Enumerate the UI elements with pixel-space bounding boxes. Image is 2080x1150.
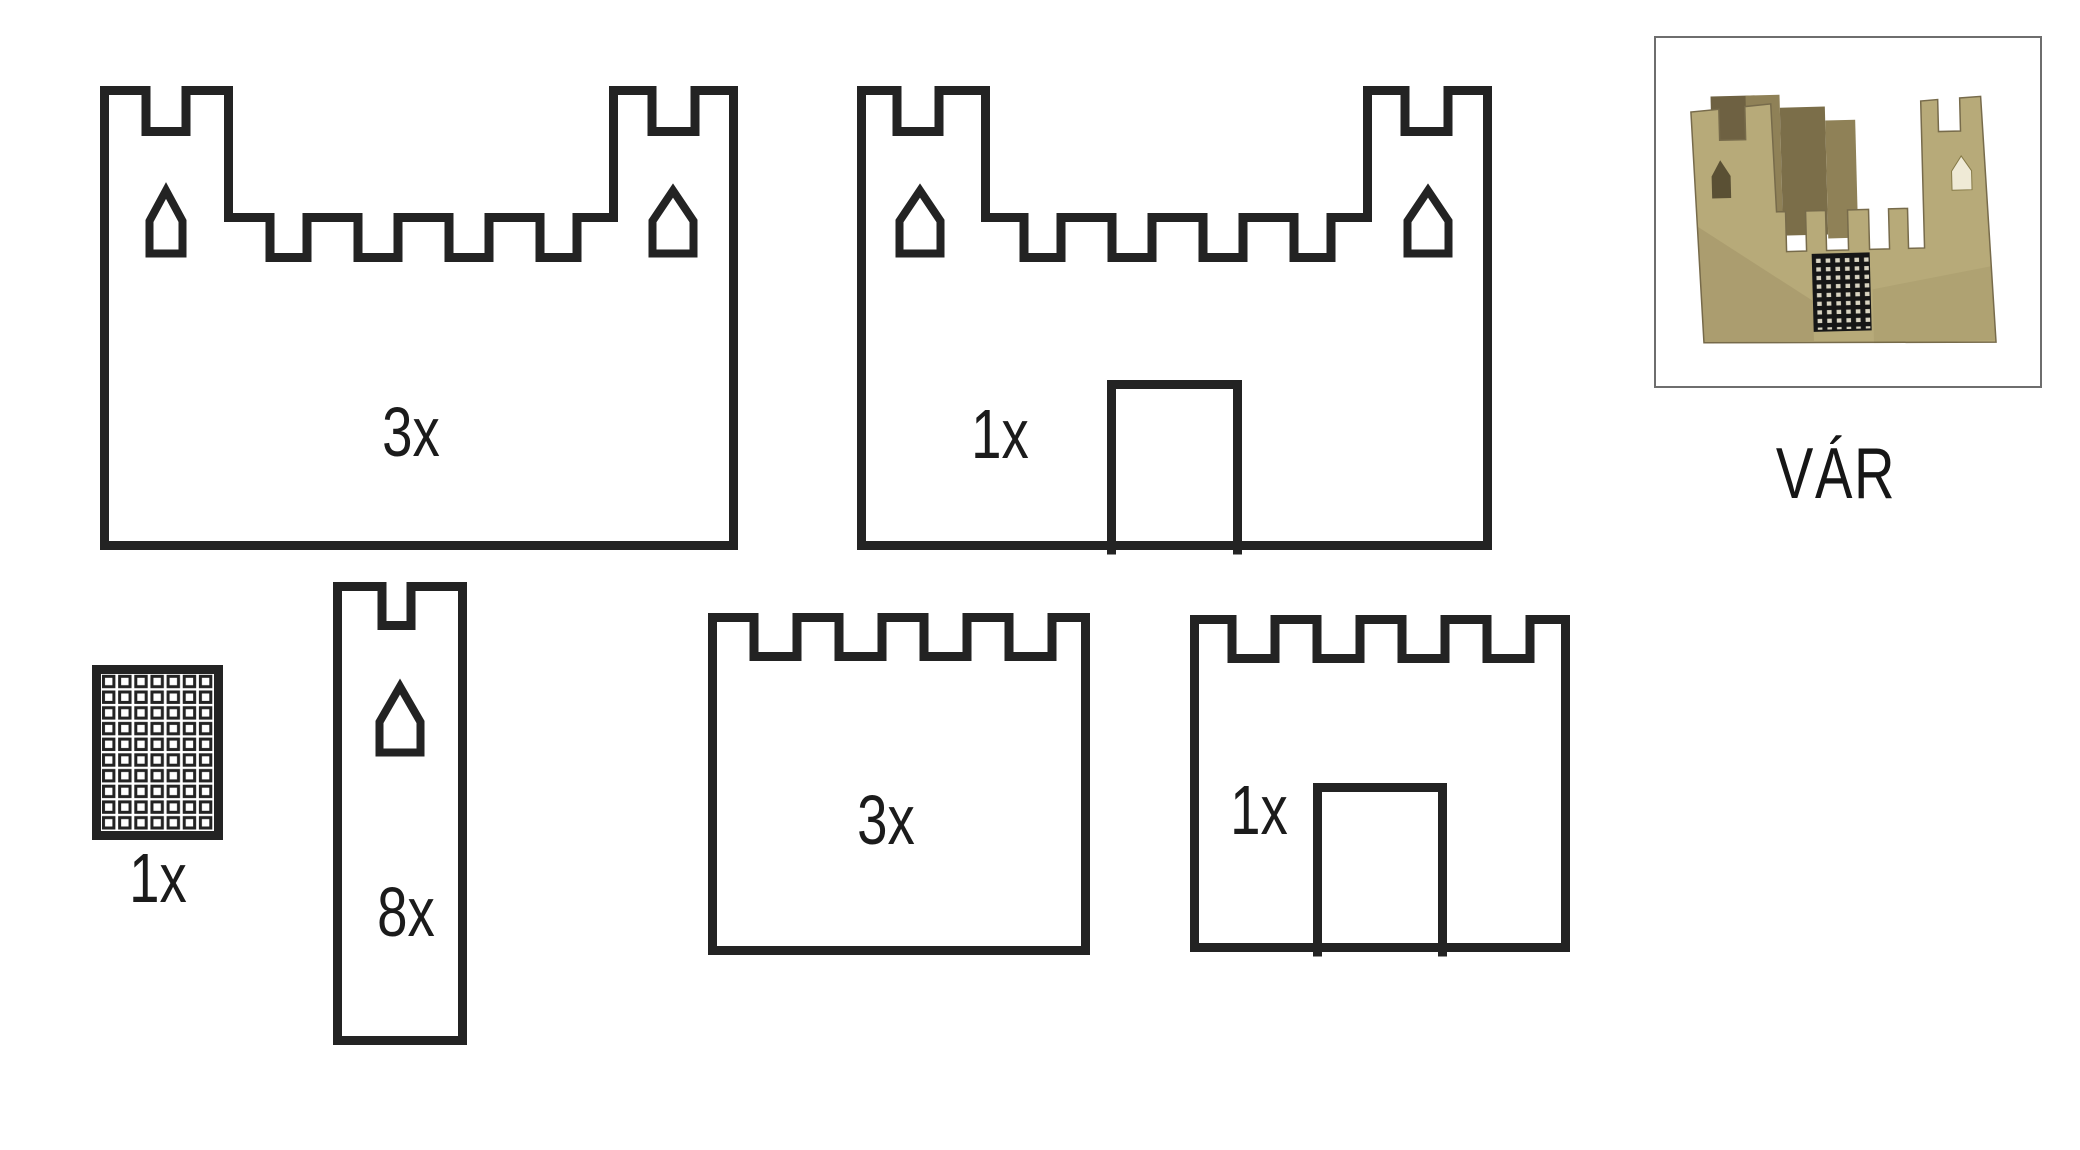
qty-label-portcullis: 1x [129,843,187,913]
piece-outer-wall-with-towers [105,91,734,546]
cardboard-castle-piece [1691,89,1997,350]
piece-outline [105,91,734,546]
piece-outer-wall-with-towers-and-gate [862,91,1488,551]
assembled-castle-photo [1654,36,2042,388]
grille-holes-grid [102,675,215,832]
piece-tower-strip [338,587,463,1041]
qty-label-battlement-wall: 3x [857,785,915,855]
qty-label-outer-wall: 3x [382,397,440,467]
castle-photo-illustration [1656,38,2040,386]
qty-label-outer-wall-gate: 1x [971,399,1029,469]
piece-outline [338,587,463,1041]
portcullis-holes [1814,255,1871,329]
piece-portcullis-grille [97,670,219,836]
qty-label-battlement-wall-gate: 1x [1230,775,1288,845]
parts-diagram-page: 3x 1x 1x 8x 3x 1x [0,0,2080,1150]
piece-outline [862,91,1488,546]
qty-label-tower-strip: 8x [377,877,435,947]
kit-name: VÁR [1776,438,1896,510]
